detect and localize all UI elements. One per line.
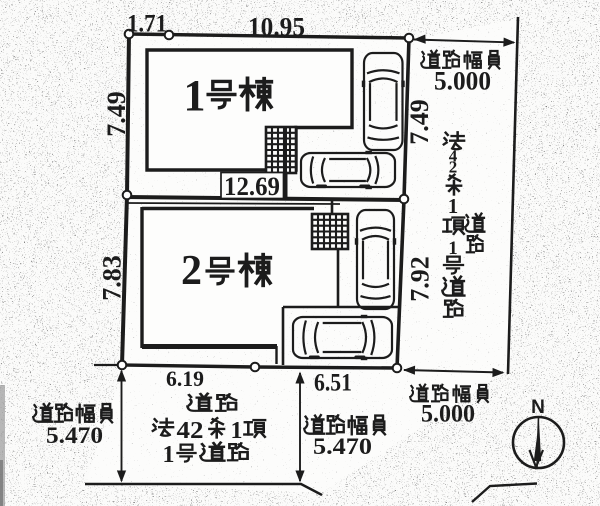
svg-text:1.71: 1.71 — [127, 11, 167, 38]
svg-text:7.92: 7.92 — [406, 256, 435, 302]
svg-text:12.69: 12.69 — [224, 172, 280, 201]
svg-text:1: 1 — [448, 194, 459, 218]
svg-text:2: 2 — [449, 158, 458, 177]
svg-text:5.470: 5.470 — [313, 434, 372, 459]
svg-text:1: 1 — [231, 418, 243, 444]
svg-text:42: 42 — [177, 418, 204, 444]
svg-text:2: 2 — [181, 248, 202, 294]
svg-text:5.000: 5.000 — [421, 401, 475, 428]
svg-text:1: 1 — [163, 442, 175, 468]
svg-text:5.470: 5.470 — [46, 423, 103, 448]
svg-text:7.83: 7.83 — [98, 255, 127, 301]
svg-text:7.49: 7.49 — [102, 91, 131, 137]
svg-text:6.19: 6.19 — [166, 366, 204, 391]
svg-text:1: 1 — [184, 71, 206, 120]
svg-text:6.51: 6.51 — [314, 370, 352, 397]
svg-text:10.95: 10.95 — [248, 13, 305, 42]
svg-text:5.000: 5.000 — [434, 67, 491, 96]
svg-text:N: N — [531, 397, 545, 418]
svg-text:7.49: 7.49 — [405, 99, 434, 145]
